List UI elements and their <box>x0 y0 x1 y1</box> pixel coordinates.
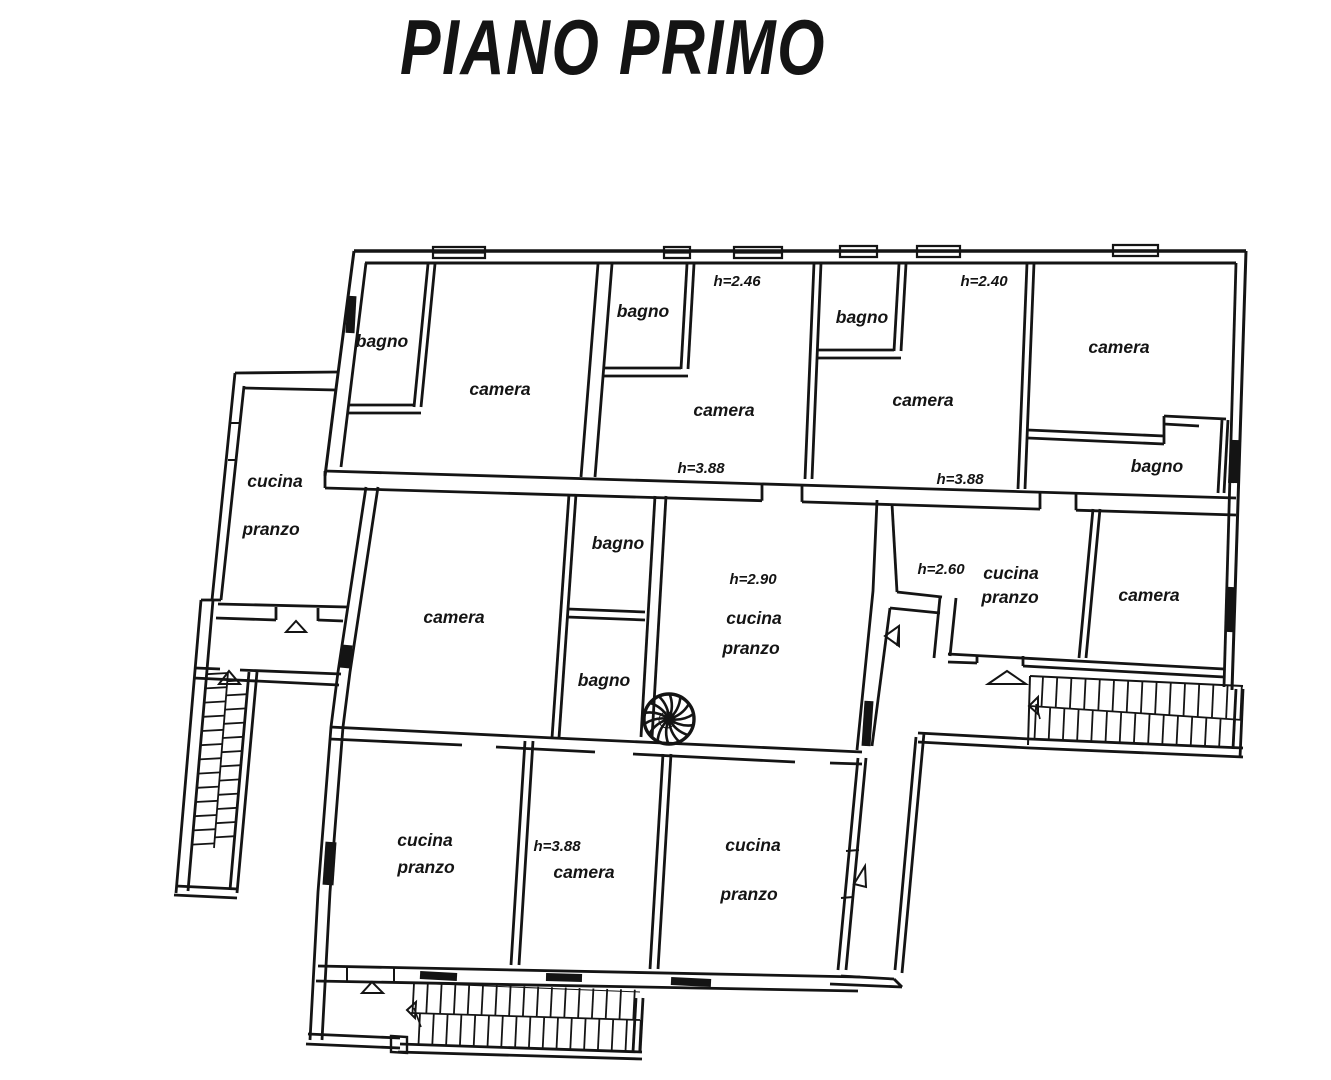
svg-text:camera: camera <box>553 862 615 882</box>
svg-text:bagno: bagno <box>836 307 889 327</box>
svg-text:bagno: bagno <box>592 533 645 553</box>
svg-text:h=2.40: h=2.40 <box>960 273 1008 290</box>
svg-text:pranzo: pranzo <box>241 519 300 539</box>
svg-text:bagno: bagno <box>356 331 409 351</box>
svg-text:bagno: bagno <box>578 670 631 690</box>
svg-text:h=3.88: h=3.88 <box>677 460 725 477</box>
svg-text:pranzo: pranzo <box>719 884 778 904</box>
svg-text:h=3.88: h=3.88 <box>533 838 581 855</box>
svg-text:h=2.46: h=2.46 <box>713 273 761 290</box>
svg-text:cucina: cucina <box>726 608 782 628</box>
svg-text:camera: camera <box>892 390 954 410</box>
svg-text:cucina: cucina <box>247 471 303 491</box>
svg-text:camera: camera <box>1118 585 1180 605</box>
svg-text:pranzo: pranzo <box>980 587 1039 607</box>
svg-text:cucina: cucina <box>725 835 781 855</box>
svg-text:h=3.88: h=3.88 <box>936 471 984 488</box>
svg-text:camera: camera <box>423 607 485 627</box>
svg-text:cucina: cucina <box>983 563 1039 583</box>
svg-text:h=2.60: h=2.60 <box>917 561 965 578</box>
svg-text:camera: camera <box>1088 337 1150 357</box>
svg-text:camera: camera <box>469 379 531 399</box>
svg-text:bagno: bagno <box>1131 456 1184 476</box>
svg-text:bagno: bagno <box>617 301 670 321</box>
svg-text:pranzo: pranzo <box>721 638 780 658</box>
svg-text:cucina: cucina <box>397 830 453 850</box>
svg-text:pranzo: pranzo <box>396 857 455 877</box>
svg-text:h=2.90: h=2.90 <box>729 571 777 588</box>
svg-text:camera: camera <box>693 400 755 420</box>
svg-text:PIANO PRIMO: PIANO PRIMO <box>400 4 826 91</box>
